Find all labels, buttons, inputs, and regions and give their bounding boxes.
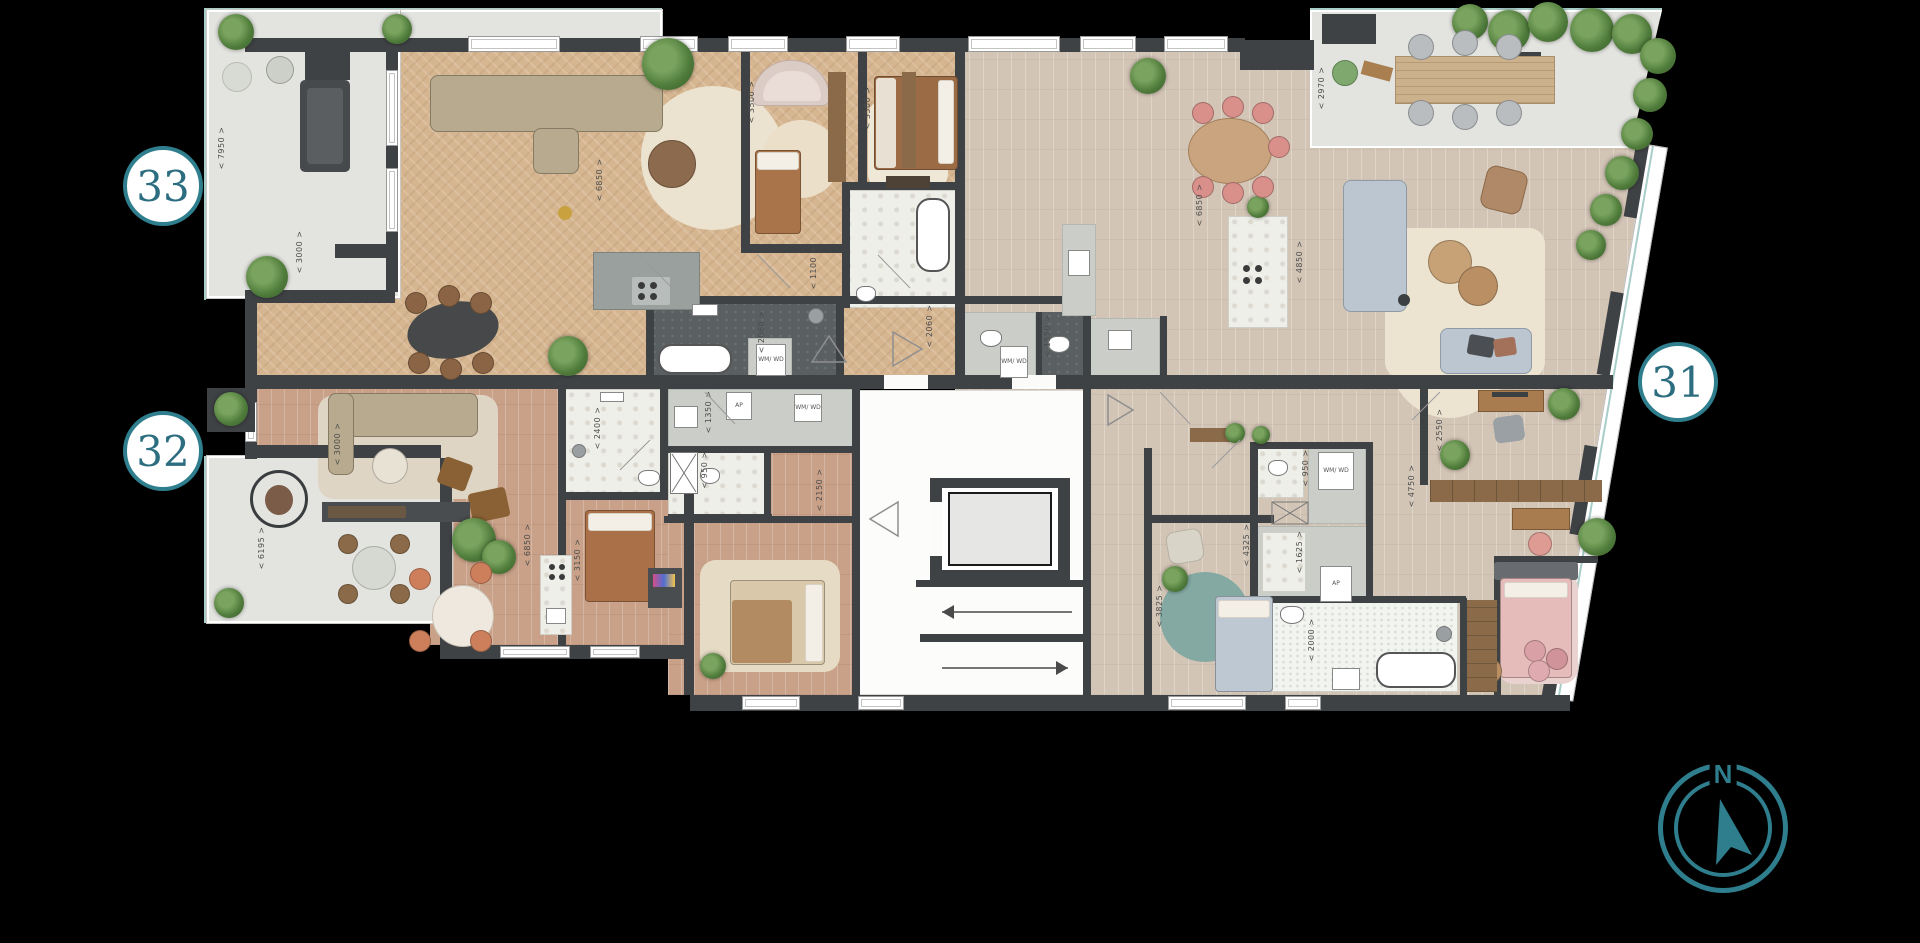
- chair: [1496, 100, 1522, 126]
- window: [468, 36, 560, 52]
- wall-segment: [1366, 442, 1373, 600]
- shaft-32: [670, 452, 698, 494]
- plant: [1570, 8, 1614, 52]
- chair: [1222, 182, 1244, 204]
- window: [500, 646, 570, 658]
- kitchen-sink-31: [1068, 250, 1090, 276]
- wardrobe-31: [1430, 480, 1602, 502]
- window: [742, 696, 800, 710]
- kitchen-island-31: [1228, 216, 1288, 328]
- wall-segment: [1250, 596, 1466, 603]
- dimension-label: < 2000 >: [1308, 619, 1316, 662]
- wall-segment: [764, 452, 771, 518]
- plant: [1130, 58, 1166, 94]
- chair: [409, 630, 431, 652]
- chair: [1452, 104, 1478, 130]
- plant: [1548, 388, 1580, 420]
- chair: [1192, 102, 1214, 124]
- plant: [1528, 2, 1568, 42]
- unit-number: 32: [136, 427, 189, 476]
- plant: [1633, 78, 1667, 112]
- desk-chair-31b: [1528, 532, 1552, 556]
- plant: [1621, 118, 1653, 150]
- wall-segment: [1240, 40, 1314, 70]
- bench-33b: [886, 176, 930, 188]
- sofa-31-cushion-brown: [1493, 337, 1517, 358]
- wall-segment: [660, 389, 668, 497]
- compass-needle-icon: [1658, 763, 1788, 893]
- pillow-33a: [757, 152, 799, 170]
- armchair-33: [648, 140, 696, 188]
- window: [386, 168, 398, 232]
- wall-segment: [558, 492, 668, 500]
- window: [1285, 696, 1321, 710]
- window: [386, 70, 398, 146]
- wall-segment: [646, 300, 654, 378]
- pouf-31: [1528, 660, 1550, 682]
- terrace-33-lounge-sofa: [300, 80, 350, 172]
- wall-segment: [741, 40, 750, 248]
- plant: [214, 392, 248, 426]
- wall-segment: [1420, 389, 1428, 485]
- wall-segment: [664, 516, 856, 523]
- sofa-31-cushion-dark: [1466, 334, 1495, 358]
- bathtub-31: [1376, 652, 1456, 688]
- pouf-31: [1524, 640, 1546, 662]
- desk-chair-31a: [1492, 414, 1525, 444]
- terrace-32-glass-edge: [204, 456, 206, 623]
- floorplan-canvas: WM/ WDAPWM/ WDWM/ WDWM/ WDAP < 7950 >< 3…: [0, 0, 1920, 943]
- dimension-label: < 1550 >: [1044, 315, 1052, 358]
- plant: [1247, 196, 1269, 218]
- plant: [1590, 194, 1622, 226]
- plant: [1440, 440, 1470, 470]
- chair: [1252, 176, 1274, 198]
- bed-33b-sheet: [876, 78, 896, 168]
- tv-sideboard-32: [322, 502, 470, 522]
- core-door-gap: [884, 375, 928, 389]
- wall-segment: [1250, 442, 1372, 449]
- plant: [1225, 423, 1245, 443]
- chair: [1268, 136, 1290, 158]
- dimension-label: < 6850 >: [1196, 184, 1204, 227]
- sink-33: [692, 304, 718, 316]
- window: [968, 36, 1060, 52]
- unit-number: 31: [1651, 358, 1704, 407]
- chair: [1252, 102, 1274, 124]
- sofa-33: [430, 75, 663, 132]
- wall-segment: [690, 695, 1570, 711]
- wall-segment: [1460, 598, 1467, 695]
- toilet-31: [1280, 606, 1304, 624]
- chair: [338, 534, 358, 554]
- wall-segment: [1036, 312, 1042, 378]
- dining-table-31: [1188, 118, 1272, 184]
- plant: [1578, 518, 1616, 556]
- dimension-label: < 4750 >: [1408, 465, 1416, 508]
- terrace-32-table: [352, 546, 396, 590]
- terrace-31-glass-top: [1310, 8, 1662, 10]
- plant: [246, 256, 288, 298]
- window: [846, 36, 900, 52]
- elevator-door: [930, 502, 942, 556]
- side-table-32: [372, 448, 408, 484]
- utility-table-32: [674, 406, 698, 428]
- plant: [1252, 426, 1270, 444]
- plant: [1162, 566, 1188, 592]
- armchair-31-teal-room: [1164, 527, 1205, 566]
- dimension-label: < 6195 >: [258, 527, 266, 570]
- sofa-31-vertical: [1343, 180, 1407, 312]
- hanging-chair-32: [250, 470, 308, 528]
- terrace-33-sideboard: [335, 244, 390, 258]
- kitchen-sink-32: [546, 608, 566, 624]
- plant: [218, 14, 254, 50]
- chair: [1496, 34, 1522, 60]
- chair: [409, 568, 431, 590]
- sink-32: [600, 392, 624, 402]
- chair: [472, 352, 494, 374]
- wall-segment: [916, 580, 1088, 587]
- dimension-label: < 2400 >: [594, 407, 602, 450]
- dimension-label: < 3000 >: [296, 231, 304, 274]
- window: [590, 646, 640, 658]
- desk-32: [648, 568, 682, 608]
- plant: [382, 14, 412, 44]
- unit-badge-32[interactable]: 32: [123, 411, 203, 491]
- plant: [548, 336, 588, 376]
- lamp-33: [558, 206, 572, 220]
- toilet-33: [856, 286, 876, 302]
- unit-badge-31[interactable]: 31: [1638, 342, 1718, 422]
- dimension-label: < 3500 >: [864, 87, 872, 130]
- wall-segment: [920, 634, 1085, 642]
- washbasin-31: [1332, 668, 1360, 690]
- chair: [1408, 100, 1434, 126]
- terrace-33-storage: [305, 52, 350, 80]
- chair: [1452, 30, 1478, 56]
- shower-31: [1436, 626, 1452, 642]
- mini-table-31: [1108, 330, 1132, 350]
- chair: [405, 292, 427, 314]
- dimension-label: < 4325 >: [1243, 524, 1251, 567]
- window: [1164, 36, 1228, 52]
- dimension-label: < 1100 >: [810, 247, 818, 290]
- shower-33: [808, 308, 824, 324]
- window: [728, 36, 788, 52]
- terrace-33-round-table: [266, 56, 294, 84]
- bathtub-33: [658, 344, 732, 374]
- wall-segment: [1144, 448, 1152, 695]
- elevator-cab: [948, 492, 1052, 566]
- dimension-label: < 2060 >: [926, 305, 934, 348]
- chair: [390, 534, 410, 554]
- dimension-label: < 3000 >: [334, 423, 342, 466]
- compass: N: [1658, 763, 1788, 893]
- dimension-label: < 950 >: [1302, 449, 1310, 486]
- appliance-box: WM/ WD: [1000, 346, 1028, 378]
- appliance-box: AP: [1320, 566, 1352, 602]
- dimension-label: < 6850 >: [524, 524, 532, 567]
- toilet-core-west: [980, 330, 1002, 347]
- terrace-31-planter: [1322, 14, 1376, 44]
- chair: [408, 352, 430, 374]
- terrace-33-pebble: [222, 62, 252, 92]
- chair: [470, 630, 492, 652]
- plant: [700, 653, 726, 679]
- dimension-label: < 6850 >: [596, 159, 604, 202]
- kitchen-island-33: [593, 252, 700, 310]
- dimension-label: < 7950 >: [218, 127, 226, 170]
- chair: [438, 285, 460, 307]
- blanket-32b: [732, 600, 792, 663]
- dimension-label: < 1350 >: [705, 391, 713, 434]
- terrace-31-pot: [1332, 60, 1358, 86]
- wardrobe-33a: [828, 72, 846, 182]
- toilet-31-wc: [1268, 460, 1288, 476]
- chair: [470, 292, 492, 314]
- chair: [1222, 96, 1244, 118]
- sofa-33-chaise: [533, 128, 579, 174]
- pillow-32b: [805, 584, 823, 662]
- wall-segment: [741, 244, 849, 253]
- dimension-label: < 2150 >: [816, 469, 824, 512]
- pillow-32: [588, 513, 652, 531]
- plant: [214, 588, 244, 618]
- floor-lamp-31: [1398, 294, 1410, 306]
- plant: [1605, 156, 1639, 190]
- monitor-31a: [1492, 392, 1528, 397]
- dimension-label: < 3500 >: [748, 81, 756, 124]
- shower-32: [572, 444, 586, 458]
- appliance-box: WM/ WD: [794, 394, 822, 422]
- dimension-label: < 2550 >: [1436, 409, 1444, 452]
- toilet-32-bath: [638, 470, 660, 486]
- plant: [1576, 230, 1606, 260]
- terrace-33-glass-edge: [204, 8, 206, 300]
- terrace-31-table: [1395, 56, 1555, 104]
- wall-segment: [852, 389, 860, 695]
- chair: [470, 562, 492, 584]
- dimension-label: < 2970 >: [1318, 67, 1326, 110]
- dimension-label: < 1625 >: [1296, 531, 1304, 574]
- chair: [1408, 34, 1434, 60]
- window: [1080, 36, 1136, 52]
- dimension-label: < 950 >: [701, 451, 709, 488]
- bathtub-33-white: [916, 198, 950, 272]
- chair: [440, 358, 462, 380]
- coffee-table-31b: [1458, 266, 1498, 306]
- pillow-31-blue: [1218, 600, 1270, 618]
- wall-segment: [558, 389, 566, 497]
- appliance-box: WM/ WD: [1318, 452, 1354, 490]
- wall-segment: [1144, 515, 1274, 523]
- dimension-label: < 3150 >: [574, 539, 582, 582]
- window: [1168, 696, 1246, 710]
- appliance-box: AP: [726, 392, 752, 420]
- chair: [390, 584, 410, 604]
- window: [858, 696, 904, 710]
- wall-segment: [836, 300, 844, 378]
- pillow-31-pink: [1504, 582, 1568, 598]
- pillow-33b: [938, 80, 954, 164]
- wall-segment: [684, 497, 692, 645]
- chair: [338, 584, 358, 604]
- wardrobe-33b: [902, 72, 916, 168]
- plant: [1640, 38, 1676, 74]
- desk-31b: [1512, 508, 1570, 530]
- dimension-label: < 3825 >: [1156, 585, 1164, 628]
- unit-badge-33[interactable]: 33: [123, 146, 203, 226]
- plant: [642, 38, 694, 90]
- unit-number: 33: [136, 162, 189, 211]
- dimension-label: < 4850 >: [1296, 241, 1304, 284]
- dimension-label: < 2060 >: [758, 311, 766, 354]
- wall-segment: [1160, 316, 1167, 378]
- closet-31: [1467, 600, 1497, 692]
